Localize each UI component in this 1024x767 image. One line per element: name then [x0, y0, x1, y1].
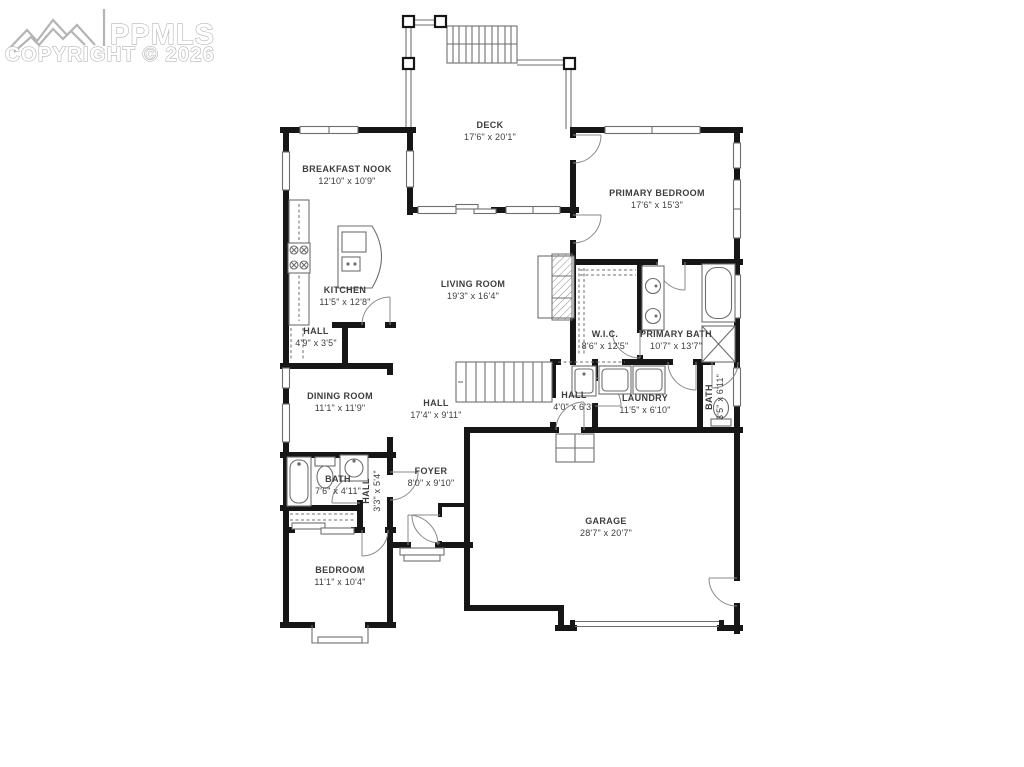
room-name: FOYER — [415, 466, 448, 476]
room-dims: 11'5" x 6'10" — [619, 405, 670, 415]
room-label-foyer: FOYER 8'0" x 9'10" — [408, 466, 455, 488]
room-dims: 28'7" x 20'7" — [580, 528, 632, 538]
room-name: BATH — [325, 474, 351, 484]
vanity-double-sink — [642, 266, 664, 330]
washer-icon — [599, 366, 631, 394]
room-dims: 12'10" x 10'9" — [318, 176, 375, 186]
room-name: HALL — [561, 390, 587, 400]
room-name: HALL — [303, 326, 329, 336]
garage-door — [570, 620, 724, 629]
room-dims: 3'5" x 6'11" — [715, 374, 725, 420]
dryer-icon — [633, 366, 665, 394]
room-name: KITCHEN — [324, 285, 366, 295]
floor-plan-svg: PPMLS COPYRIGHT © 2026 — [0, 0, 1024, 767]
room-label-kitchen: KITCHEN 11'5" x 12'8" — [319, 285, 370, 307]
bathtub-hall — [287, 457, 311, 506]
room-dims: 11'5" x 12'8" — [319, 297, 370, 307]
room-label-wic: W.I.C. 8'6" x 12'5" — [582, 329, 629, 351]
foyer-closet-walls — [440, 505, 467, 545]
room-name: PRIMARY BATH — [640, 329, 712, 339]
room-label-garage: GARAGE 28'7" x 20'7" — [580, 516, 632, 538]
room-dims: 11'1" x 11'9" — [315, 403, 366, 413]
room-label-hall-small: HALL 4'9" x 3'5" — [295, 326, 337, 348]
room-label-dining-room: DINING ROOM 11'1" x 11'9" — [307, 391, 373, 413]
room-name: LIVING ROOM — [441, 279, 505, 289]
bay-window — [312, 625, 368, 643]
room-label-primary-bedroom: PRIMARY BEDROOM 17'6" x 15'3" — [609, 188, 705, 210]
room-name: PRIMARY BEDROOM — [609, 188, 705, 198]
deck-structure — [403, 16, 575, 129]
stove-icon — [288, 243, 310, 273]
kitchen-island — [338, 226, 382, 288]
room-dims: 7'6" x 4'11" — [315, 486, 361, 496]
room-label-laundry: LAUNDRY 11'5" x 6'10" — [619, 393, 670, 415]
room-dims: 11'1" x 10'4" — [314, 577, 365, 587]
room-name: DECK — [477, 120, 504, 130]
room-label-living-room: LIVING ROOM 19'3" x 16'4" — [441, 279, 505, 301]
room-dims: 8'6" x 12'5" — [582, 341, 629, 351]
sliding-door — [456, 205, 496, 214]
room-name: W.I.C. — [592, 329, 619, 339]
closet-bypass-doors — [292, 523, 354, 534]
furnace-icon — [556, 434, 594, 462]
room-name: LAUNDRY — [622, 393, 668, 403]
room-dims: 10'7" x 13'7" — [650, 341, 702, 351]
room-label-primary-bath: PRIMARY BATH 10'7" x 13'7" — [640, 329, 712, 351]
room-dims: 17'4" x 9'11" — [410, 410, 461, 420]
room-dims: 17'6" x 15'3" — [631, 200, 683, 210]
watermark-copyright: COPYRIGHT © 2026 — [5, 43, 215, 66]
room-dims: 19'3" x 16'4" — [447, 291, 499, 301]
room-label-bath-right: BATH 3'5" x 6'11" — [704, 374, 725, 420]
room-name: HALL — [423, 398, 449, 408]
room-label-hall-main: HALL 17'4" x 9'11" — [410, 398, 461, 420]
room-name: GARAGE — [585, 516, 627, 526]
floor-plan-canvas: PPMLS COPYRIGHT © 2026 — [0, 0, 1024, 767]
stairs-main — [456, 362, 552, 402]
watermark: PPMLS COPYRIGHT © 2026 — [5, 9, 215, 66]
room-name: BEDROOM — [315, 565, 364, 575]
room-label-deck: DECK 17'6" x 20'1" — [464, 120, 516, 142]
room-name: DINING ROOM — [307, 391, 373, 401]
deck-stairs — [447, 26, 517, 63]
room-dims: 3'3" x 5'4" — [372, 470, 382, 512]
room-dims: 17'6" x 20'1" — [464, 132, 516, 142]
room-dims: 4'9" x 3'5" — [295, 338, 337, 348]
fireplace-icon — [538, 254, 574, 320]
room-label-bedroom: BEDROOM 11'1" x 10'4" — [314, 565, 365, 587]
room-dims: 8'0" x 9'10" — [408, 478, 455, 488]
room-name: BATH — [704, 384, 714, 410]
room-name: BREAKFAST NOOK — [302, 164, 392, 174]
room-label-breakfast-nook: BREAKFAST NOOK 12'10" x 10'9" — [302, 164, 392, 186]
front-steps — [400, 548, 444, 561]
bathtub-primary — [702, 264, 735, 322]
room-name: HALL — [361, 478, 371, 504]
room-dims: 4'0" x 6'3" — [553, 402, 595, 412]
